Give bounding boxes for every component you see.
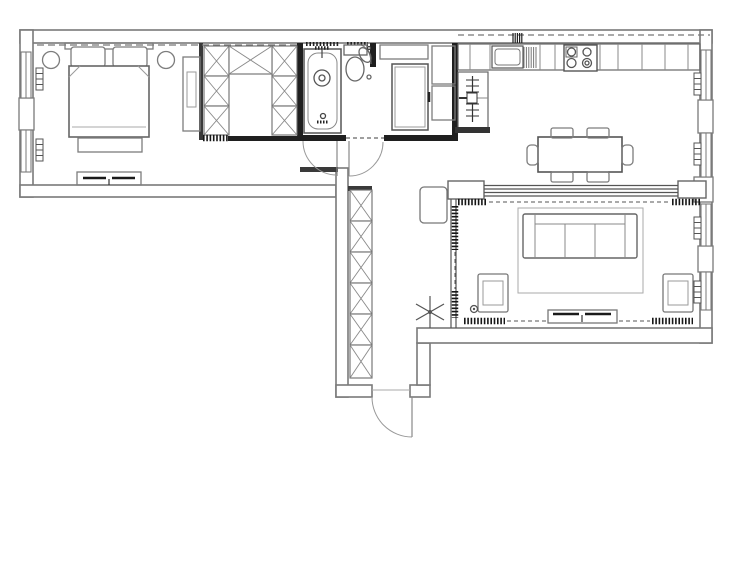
hall-wardrobe-2 bbox=[350, 221, 372, 252]
dining-chair-bottom-1 bbox=[551, 172, 573, 182]
toilet-bowl bbox=[346, 57, 364, 81]
closet-unit-right-2 bbox=[272, 76, 297, 106]
armchair-right-seat bbox=[668, 281, 688, 305]
radiator-living-1 bbox=[694, 217, 701, 239]
radiator-living-2 bbox=[694, 281, 701, 303]
window-bedroom-1 bbox=[21, 52, 31, 98]
wall-bottom-east bbox=[417, 328, 712, 343]
bed-bench bbox=[78, 138, 142, 152]
partition-pocket-right bbox=[678, 181, 706, 198]
window-living-1 bbox=[701, 204, 711, 246]
bedside-stool-left bbox=[43, 52, 60, 69]
shower-enclosure bbox=[392, 64, 428, 130]
shower-top-cabinet bbox=[380, 45, 428, 59]
dining-table bbox=[538, 137, 622, 172]
closet-unit-left-3 bbox=[204, 106, 229, 135]
toilet-valve bbox=[367, 75, 371, 79]
bed-pillow-1 bbox=[71, 47, 105, 67]
entry-door-arc bbox=[372, 397, 412, 437]
kitchen-island-symbol-box bbox=[467, 93, 477, 103]
radiator-kitchen-1 bbox=[694, 73, 701, 95]
bathtub bbox=[304, 49, 341, 133]
dining-chair-left bbox=[527, 145, 538, 165]
hall-wardrobe-5 bbox=[350, 314, 372, 345]
wall-corridor-left bbox=[336, 168, 348, 397]
hall-wardrobe-4 bbox=[350, 283, 372, 314]
bedroom-cabinet-inner bbox=[187, 72, 196, 107]
hall-wardrobe-3 bbox=[350, 252, 372, 283]
wall-bottom-west bbox=[20, 185, 336, 197]
radiator-bedroom-1 bbox=[36, 68, 43, 90]
window-bedroom-2 bbox=[21, 130, 31, 172]
wall-closet-bottom-track bbox=[228, 136, 310, 141]
kitchen-island-end-cap bbox=[455, 127, 490, 133]
floor-lamp-dot bbox=[473, 308, 475, 310]
pier-right-2 bbox=[698, 246, 713, 272]
closet-unit-right-1 bbox=[272, 46, 297, 76]
wall-top bbox=[20, 30, 712, 43]
bath-tall-cabinet-2 bbox=[432, 86, 455, 120]
coat-rack-hub bbox=[428, 310, 432, 314]
dining-chair-bottom-2 bbox=[587, 172, 609, 182]
bedside-stool-right bbox=[158, 52, 175, 69]
bed-pillow-2 bbox=[113, 47, 147, 67]
floor-plan bbox=[0, 0, 750, 562]
wall-corridor-right bbox=[417, 343, 430, 385]
window-kitchen-2 bbox=[701, 133, 711, 177]
window-kitchen-1 bbox=[701, 50, 711, 100]
wall-entry-jamb-left bbox=[336, 385, 372, 397]
partition-pocket-left bbox=[448, 181, 484, 199]
hall-console bbox=[420, 187, 447, 223]
bath-tall-cabinet-1 bbox=[432, 46, 455, 84]
hall-wardrobe-6 bbox=[350, 345, 372, 378]
bed-mattress bbox=[69, 66, 149, 137]
closet-unit-left-2 bbox=[204, 76, 229, 106]
partition-sliding-tracks bbox=[484, 186, 678, 197]
kitchen-sink-drainer bbox=[524, 47, 536, 68]
dining-chair-right bbox=[622, 145, 633, 165]
pier-right-1 bbox=[698, 100, 713, 133]
hall-wardrobe-1 bbox=[350, 190, 372, 221]
radiator-kitchen-2 bbox=[694, 143, 701, 165]
wall-entry-jamb-right bbox=[410, 385, 430, 397]
pier-left bbox=[19, 98, 34, 130]
closet-bridge-unit bbox=[229, 46, 272, 74]
handbasin-faucet bbox=[368, 47, 371, 50]
armchair-left-seat bbox=[483, 281, 503, 305]
wall-bathroom-bottom-2 bbox=[384, 135, 458, 141]
wall-bathroom-left bbox=[297, 43, 303, 141]
closet-unit-left-1 bbox=[204, 46, 229, 76]
window-living-2 bbox=[701, 272, 711, 310]
shower-door-arc bbox=[349, 142, 383, 176]
sofa-body bbox=[523, 214, 637, 258]
floor-plan-page bbox=[0, 0, 750, 562]
radiator-bedroom-2 bbox=[36, 139, 43, 161]
closet-unit-right-3 bbox=[272, 106, 297, 135]
bedroom-cabinet bbox=[183, 57, 200, 131]
